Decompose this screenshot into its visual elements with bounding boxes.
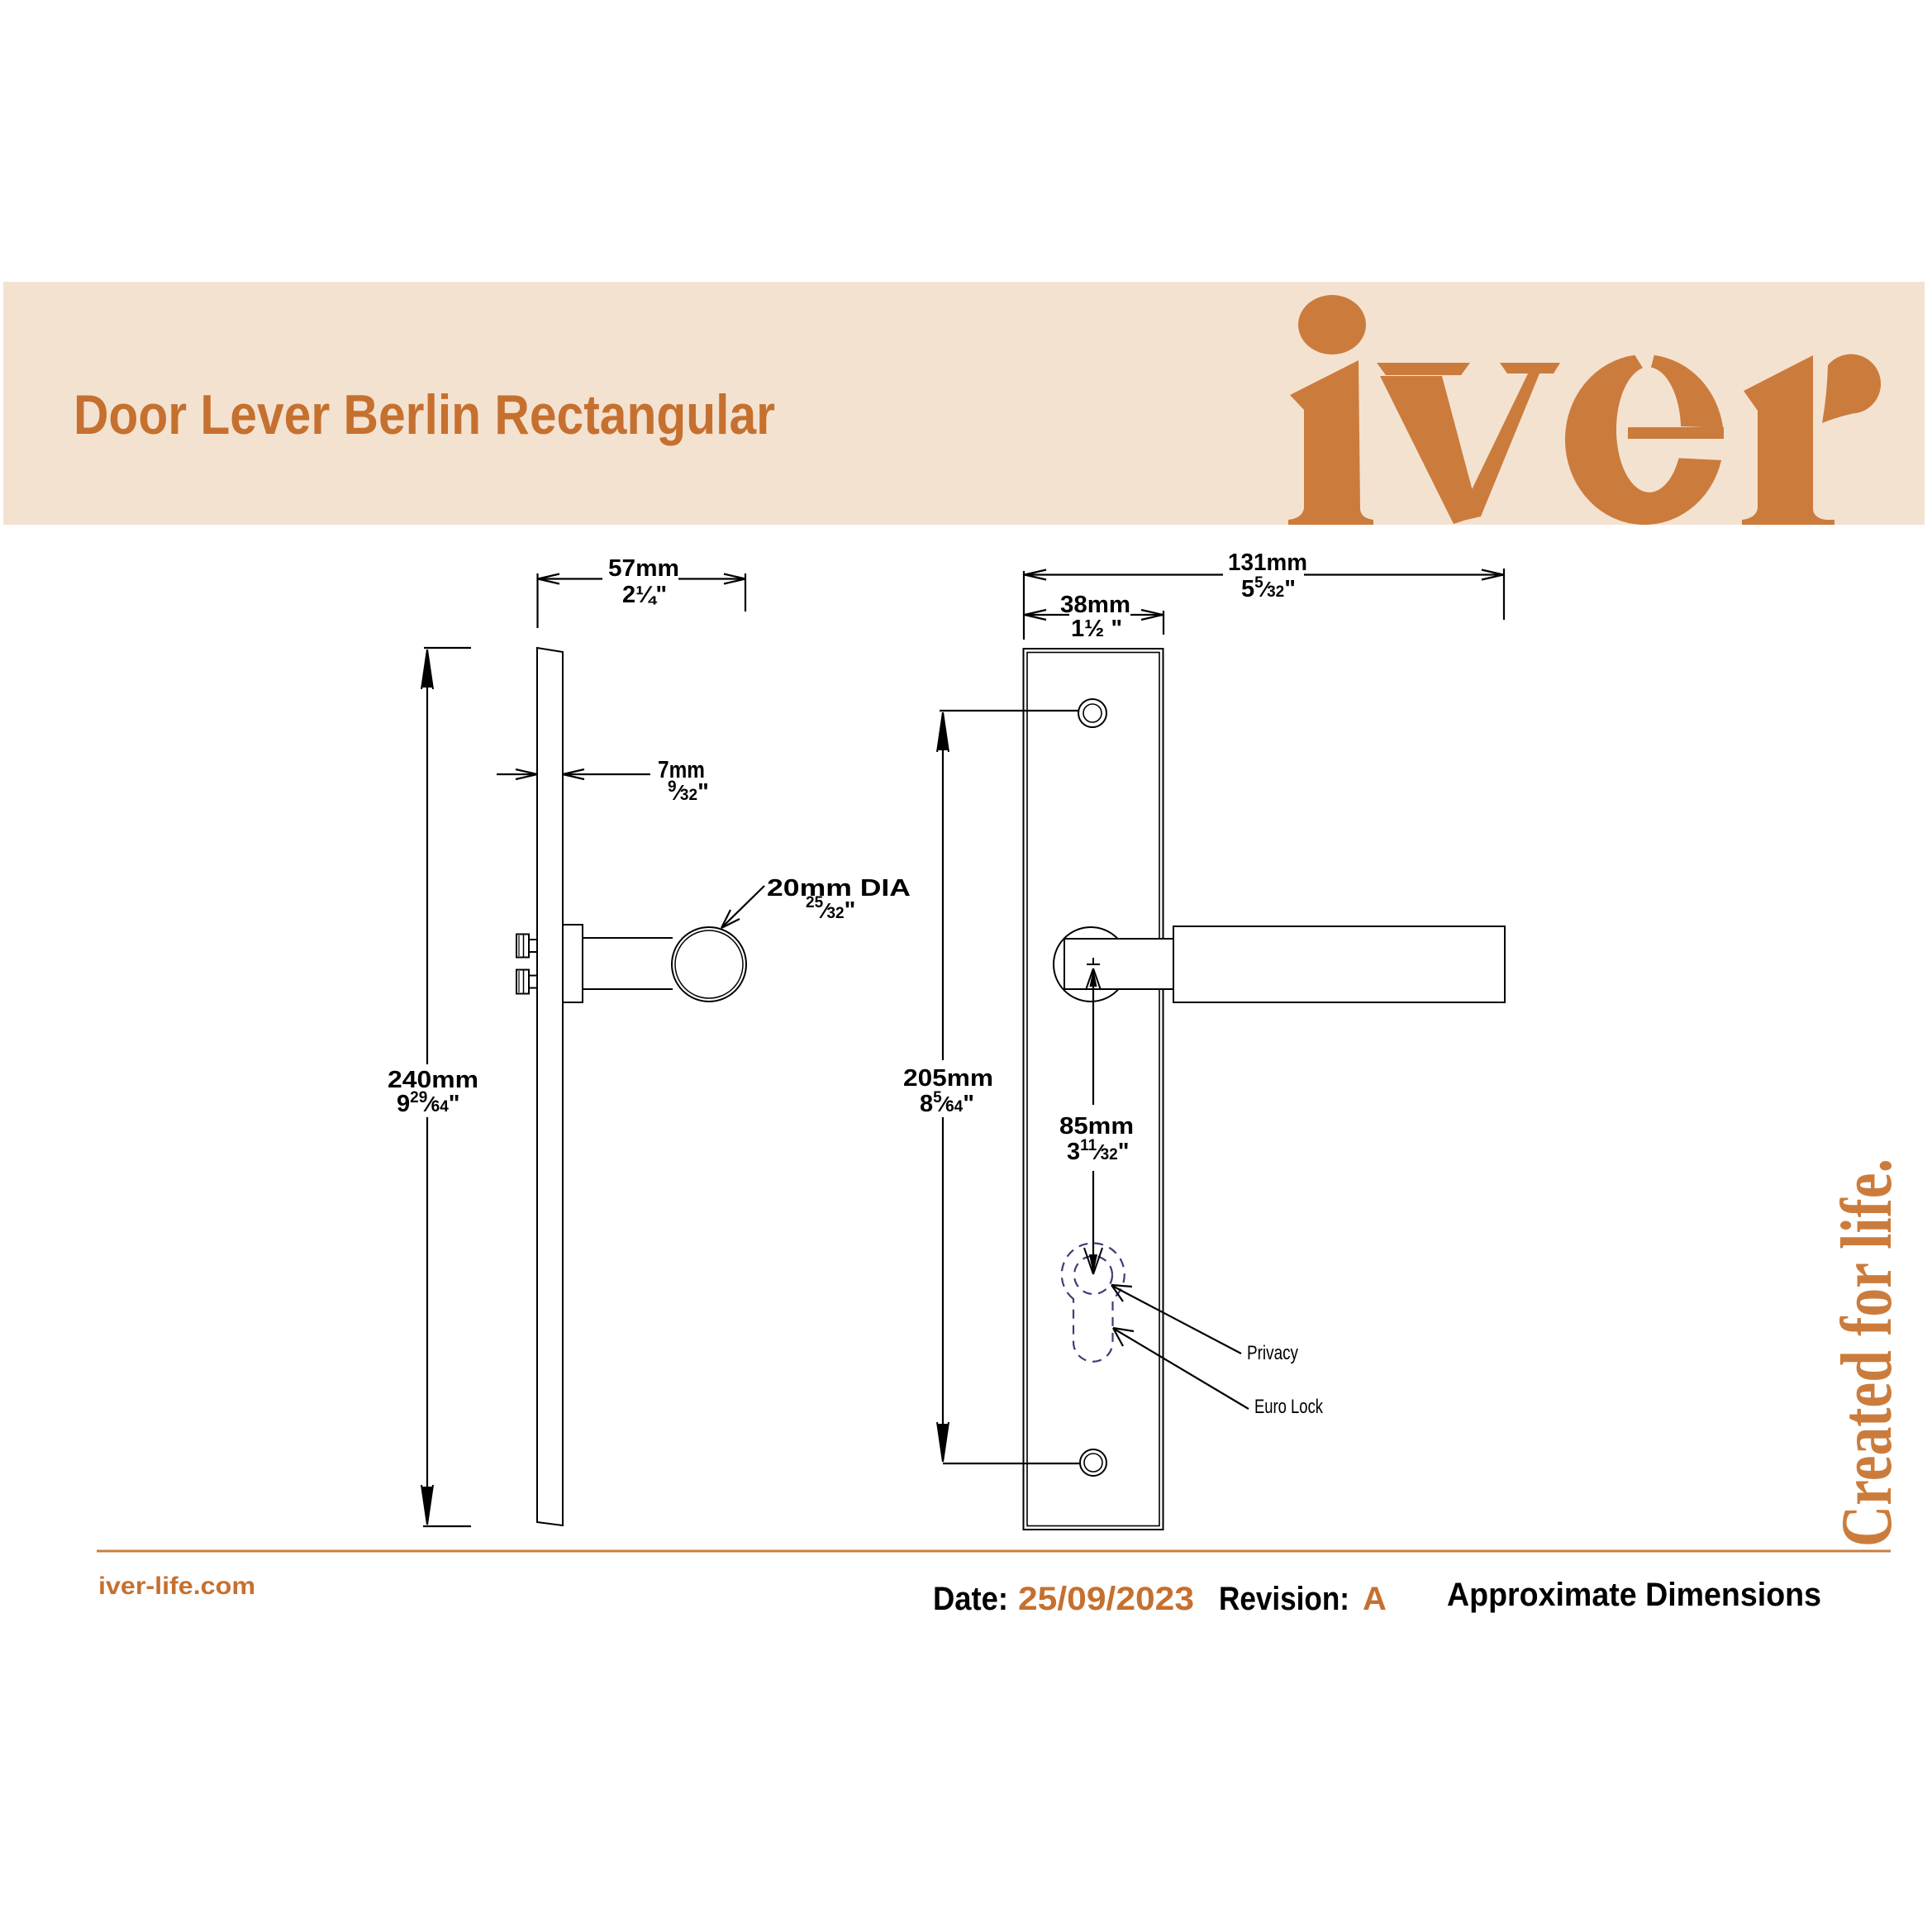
svg-text:205mm: 205mm bbox=[903, 1065, 993, 1092]
svg-text:Revision:: Revision: bbox=[1219, 1581, 1349, 1617]
svg-text:25/09/2023: 25/09/2023 bbox=[1018, 1581, 1194, 1617]
svg-text:85⁄64": 85⁄64" bbox=[920, 1089, 974, 1117]
svg-text:38mm: 38mm bbox=[1060, 592, 1130, 618]
svg-text:Approximate Dimensions: Approximate Dimensions bbox=[1447, 1577, 1821, 1613]
svg-text:57mm: 57mm bbox=[608, 555, 679, 582]
svg-text:20mm DIA: 20mm DIA bbox=[767, 875, 911, 902]
svg-text:929⁄64": 929⁄64" bbox=[397, 1089, 460, 1117]
svg-text:iver-life.com: iver-life.com bbox=[98, 1573, 255, 1600]
svg-text:A: A bbox=[1363, 1581, 1387, 1617]
svg-text:85mm: 85mm bbox=[1059, 1113, 1134, 1140]
svg-text:Privacy: Privacy bbox=[1247, 1342, 1298, 1364]
svg-text:Euro Lock: Euro Lock bbox=[1254, 1396, 1324, 1418]
svg-text:55⁄32": 55⁄32" bbox=[1241, 574, 1296, 602]
svg-text:2¼": 2¼" bbox=[622, 582, 667, 608]
svg-text:131mm: 131mm bbox=[1228, 550, 1307, 576]
svg-text:311⁄32": 311⁄32" bbox=[1067, 1137, 1129, 1165]
svg-text:240mm: 240mm bbox=[388, 1067, 478, 1093]
svg-text:Created for life.: Created for life. bbox=[1827, 1159, 1907, 1547]
svg-text:Date:: Date: bbox=[933, 1581, 1008, 1617]
svg-text:1½ ": 1½ " bbox=[1071, 616, 1122, 642]
svg-text:Door Lever Berlin Rectangular: Door Lever Berlin Rectangular bbox=[74, 383, 775, 446]
